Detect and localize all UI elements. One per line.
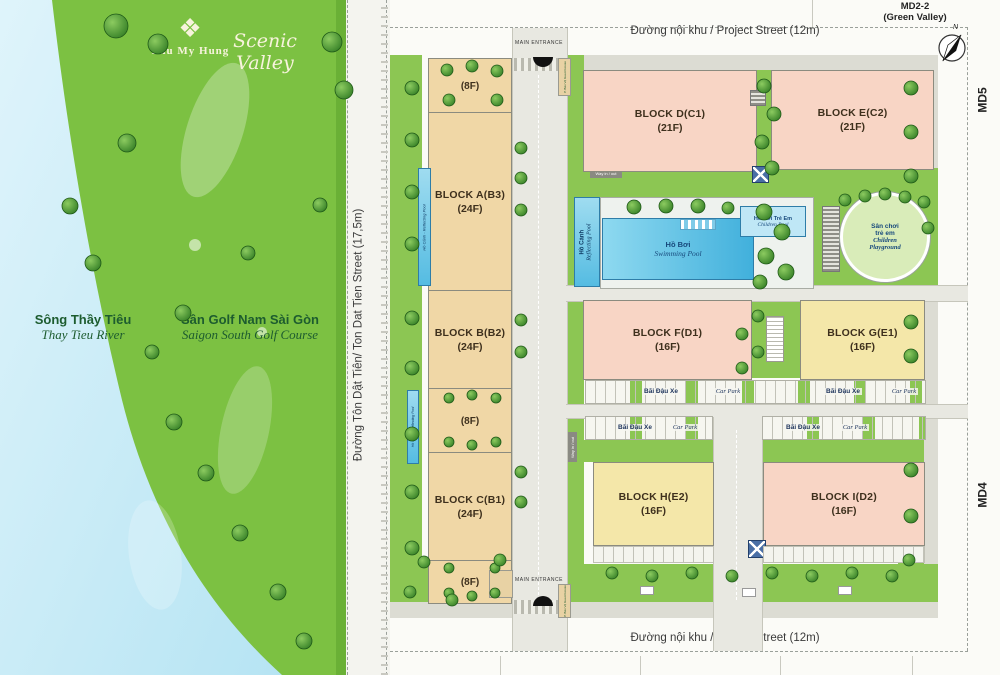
- block-b-name: BLOCK B(B2): [435, 327, 505, 339]
- lowrise-a-label: (8F): [461, 81, 479, 92]
- site-structure: [838, 586, 852, 595]
- children-pool-label-en: Children Pool: [757, 222, 788, 228]
- block-c-name: BLOCK C(B1): [435, 494, 505, 506]
- main-entrance-top-label: MAIN ENTRANCE: [499, 40, 579, 46]
- lot-md2-2-label: MD2-2: [845, 1, 985, 12]
- playground-label-vi1: Sân chơi: [871, 223, 899, 230]
- block-e-floors: (21F): [840, 121, 865, 133]
- guard-house-bottom-label: P. Bảo Vệ Guard House: [563, 585, 567, 617]
- ring-road-top: [540, 55, 938, 71]
- block-e: BLOCK E(C2) (21F): [771, 70, 934, 170]
- swimming-pool-label-en: Swimming Pool: [654, 249, 701, 258]
- lot-md4-label: MD4: [976, 482, 990, 507]
- road-centerline: [538, 75, 539, 595]
- block-a-name: BLOCK A(B3): [435, 189, 505, 201]
- block-d: BLOCK D(C1) (21F): [583, 70, 757, 172]
- children-pool: Hồ Bơi Trẻ Em Children Pool: [740, 206, 806, 237]
- car-park-label: Car Park: [832, 422, 878, 432]
- lot-boundary-line: [640, 656, 641, 675]
- car-park-label: Car Park: [702, 386, 754, 396]
- block-c: BLOCK C(B1) (24F): [428, 452, 512, 562]
- block-g: BLOCK G(E1) (16F): [800, 300, 925, 380]
- pool-steps: [680, 219, 716, 230]
- block-a-floors: (24F): [457, 203, 482, 215]
- car-park-label: Bãi Đậu Xe: [630, 386, 692, 396]
- street-label-left: Đường Tôn Dật Tiên/ Ton Dat Tien Street …: [352, 209, 364, 462]
- swimming-pool: Hồ Bơi Swimming Pool: [602, 218, 754, 280]
- playground-label-vi2: trẻ em: [875, 230, 895, 237]
- block-d-floors: (21F): [657, 122, 682, 134]
- lowrise-b: (8F): [428, 388, 512, 454]
- road-central: [512, 28, 568, 651]
- road-h-i: [713, 417, 763, 651]
- car-park-label-en: Car Park: [714, 388, 742, 395]
- block-i-floors: (16F): [831, 505, 856, 517]
- site-structure: [742, 588, 756, 597]
- guard-house-top: P. Bảo Vệ Guard House: [558, 58, 571, 96]
- site-structure: [489, 570, 513, 598]
- green-gap-d-e: [755, 70, 771, 170]
- utility-box-x: [752, 166, 769, 183]
- block-h-name: BLOCK H(E2): [619, 491, 689, 503]
- block-i-name: BLOCK I(D2): [811, 491, 877, 503]
- road-centerline: [736, 430, 737, 600]
- car-park-label: Car Park: [878, 386, 930, 396]
- compass-icon: [933, 26, 973, 66]
- car-park-label: Car Park: [662, 422, 708, 432]
- street-label-top: Đường nội khu / Project Street (12m): [575, 25, 875, 37]
- lot-boundary-line: [912, 656, 913, 675]
- playground-label-en1: Children: [873, 237, 897, 244]
- car-park-label-vi: Bãi Đậu Xe: [824, 388, 862, 395]
- block-h-floors: (16F): [641, 505, 666, 517]
- car-park-label: Bãi Đậu Xe: [812, 386, 874, 396]
- car-park-label-vi: Bãi Đậu Xe: [642, 388, 680, 395]
- reflecting-pool-strip-upper-label: Hồ Cảnh - Reflecting Pool: [422, 204, 427, 250]
- parking-stalls: [763, 546, 925, 563]
- car-park-label-vi: Bãi Đậu Xe: [784, 424, 822, 431]
- reflecting-pool-center-en: Reflecting Pool: [587, 223, 594, 260]
- car-park-label: Bãi Đậu Xe: [604, 422, 666, 432]
- car-park-label-vi: Bãi Đậu Xe: [616, 424, 654, 431]
- lot-md5-label: MD5: [976, 87, 990, 112]
- block-b-floors: (24F): [457, 341, 482, 353]
- utility-box: [750, 90, 766, 106]
- parking-stalls: [593, 546, 714, 563]
- utility-structure: [822, 206, 840, 272]
- reflecting-pool-strip-lower-label: Hồ Cảnh - Reflecting Pool: [411, 407, 415, 447]
- block-g-floors: (16F): [850, 341, 875, 353]
- green-strip-central: [566, 55, 584, 602]
- block-e-name: BLOCK E(C2): [818, 107, 888, 119]
- reflecting-pool-strip-lower: Hồ Cảnh - Reflecting Pool: [407, 390, 419, 464]
- car-park-label-en: Car Park: [890, 388, 918, 395]
- block-g-name: BLOCK G(E1): [827, 327, 897, 339]
- block-f: BLOCK F(D1) (16F): [583, 300, 752, 380]
- ring-road-bottom: [390, 602, 938, 618]
- block-b: BLOCK B(B2) (24F): [428, 290, 512, 390]
- stairs-f-g: [766, 316, 784, 362]
- lot-md2-2-sublabel: (Green Valley): [845, 12, 985, 23]
- green-strip-left: [390, 55, 422, 602]
- block-c-floors: (24F): [457, 508, 482, 520]
- reflecting-pool-strip-upper: Hồ Cảnh - Reflecting Pool: [418, 168, 431, 286]
- compass-north-label: N: [953, 24, 958, 31]
- block-f-name: BLOCK F(D1): [633, 327, 702, 339]
- reflecting-pool-center: Hồ Cảnh Reflecting Pool: [574, 197, 600, 287]
- way-in-out-label: Way in / out: [570, 437, 575, 458]
- lowrise-b-label: (8F): [461, 416, 479, 427]
- playground-label-en2: Playground: [869, 244, 900, 251]
- master-plan-canvas: ❖ Phu My Hung Scenic Valley Sông Thầy Ti…: [0, 0, 1000, 675]
- project-logo-text: Scenic Valley: [210, 30, 320, 74]
- river-label: Sông Thầy Tiêu Thay Tieu River: [18, 312, 148, 343]
- site-structure: [640, 586, 654, 595]
- children-playground: Sân chơi trẻ em Children Playground: [840, 192, 930, 282]
- block-f-floors: (16F): [655, 341, 680, 353]
- street-edge-line: [390, 651, 968, 652]
- car-park-label: Bãi Đậu Xe: [772, 422, 834, 432]
- golf-course-label-vi: Sân Golf Nam Sài Gòn: [160, 312, 340, 327]
- block-i: BLOCK I(D2) (16F): [763, 462, 925, 546]
- lowrise-a: (8F): [428, 58, 512, 114]
- river-label-vi: Sông Thầy Tiêu: [18, 312, 148, 327]
- car-park-label-en: Car Park: [671, 424, 699, 431]
- car-park-label-en: Car Park: [841, 424, 869, 431]
- lot-boundary-line: [780, 656, 781, 675]
- guard-house-top-label: P. Bảo Vệ Guard House: [563, 61, 567, 93]
- swimming-pool-label-vi: Hồ Bơi: [666, 240, 691, 249]
- river-label-en: Thay Tieu River: [18, 327, 148, 343]
- block-d-name: BLOCK D(C1): [635, 108, 705, 120]
- lot-boundary-line: [500, 656, 501, 675]
- block-h: BLOCK H(E2) (16F): [593, 462, 714, 546]
- guard-house-bottom: P. Bảo Vệ Guard House: [558, 584, 571, 618]
- lowrise-c-label: (8F): [461, 577, 479, 588]
- lot-boundary-line: [812, 0, 813, 27]
- block-a: BLOCK A(B3) (24F): [428, 112, 512, 292]
- street-edge-line: [967, 27, 968, 651]
